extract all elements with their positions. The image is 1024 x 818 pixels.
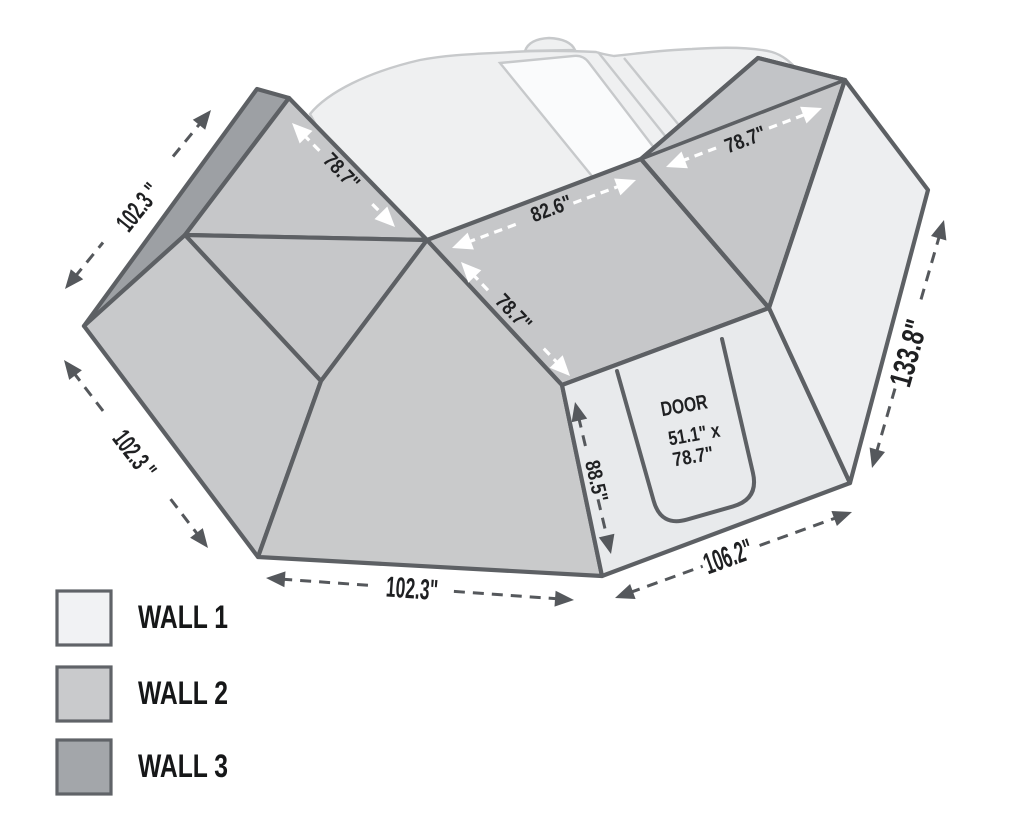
svg-text:WALL 3: WALL 3 bbox=[138, 748, 228, 784]
svg-text:WALL 2: WALL 2 bbox=[138, 675, 228, 711]
svg-text:WALL 1: WALL 1 bbox=[138, 599, 228, 635]
svg-text:102.3": 102.3" bbox=[385, 571, 439, 607]
